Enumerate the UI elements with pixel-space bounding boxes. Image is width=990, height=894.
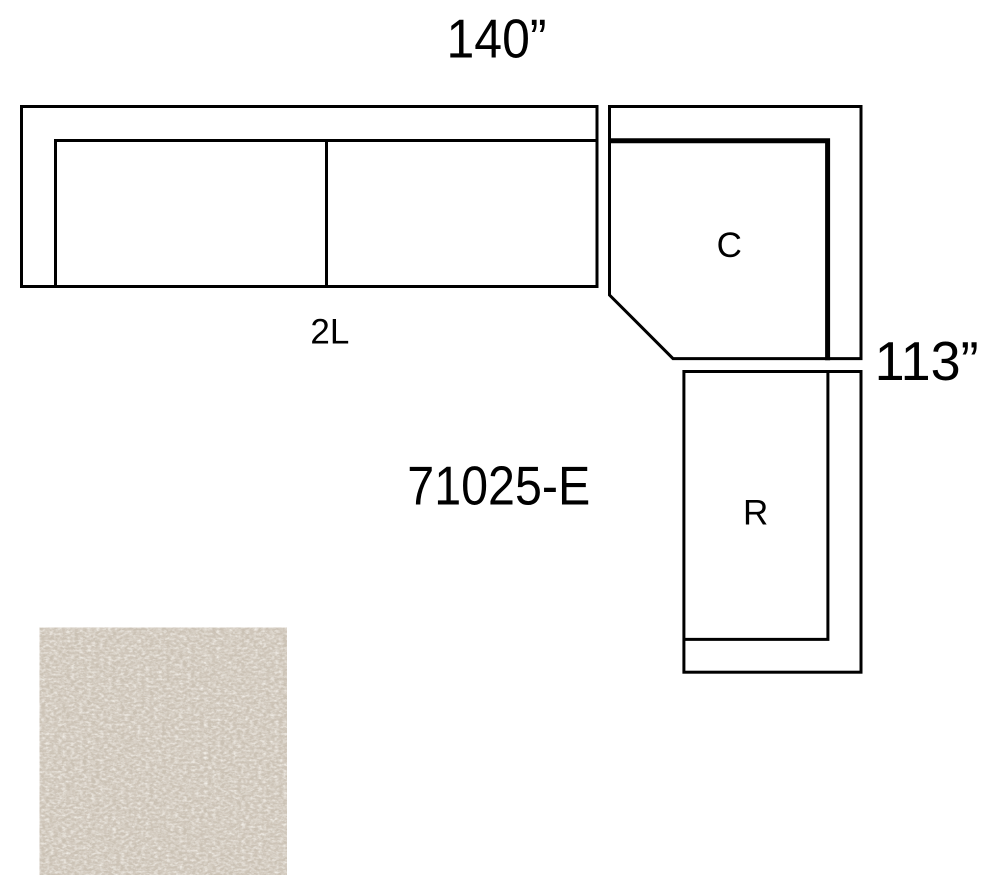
svg-text:113”: 113” [875, 330, 979, 392]
svg-text:71025-E: 71025-E [407, 455, 590, 517]
svg-text:R: R [743, 493, 768, 532]
svg-text:2L: 2L [310, 312, 349, 351]
svg-text:140”: 140” [447, 8, 547, 70]
svg-text:C: C [717, 226, 742, 265]
